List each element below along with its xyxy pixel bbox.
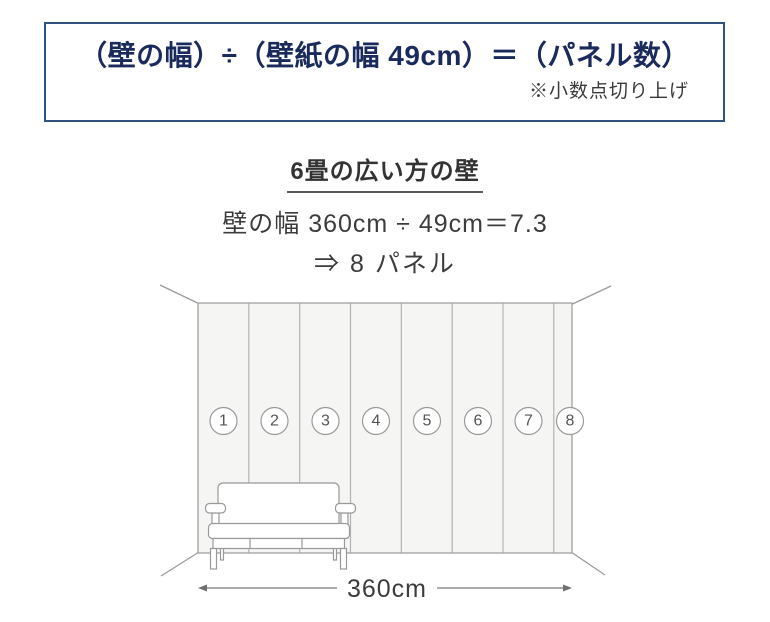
sofa-front-leg (341, 549, 347, 570)
dimension-line: 360cm (198, 575, 572, 603)
example-heading: 6畳の広い方の壁 (287, 158, 482, 193)
sofa-armrest (206, 504, 226, 514)
panel-number-badge: 3 (312, 408, 339, 435)
panel-number-badge: 6 (465, 408, 492, 435)
example-result: ⇒ 8 パネル (0, 248, 770, 280)
panel-number-badge: 2 (261, 408, 288, 435)
panel-count-formula: （壁の幅）÷（壁紙の幅 49cm）＝（パネル数） (46, 36, 723, 76)
panel-number: 2 (270, 413, 279, 430)
ceiling-corner-line-left (160, 285, 198, 303)
wall-width-label: 360cm (347, 575, 427, 603)
panel-number: 7 (524, 413, 533, 430)
panel-number-badge: 4 (363, 408, 390, 435)
panel-number: 8 (566, 413, 575, 430)
arrow-right-icon (563, 585, 572, 592)
panel-number: 3 (321, 413, 330, 430)
floor-corner-line-left (161, 553, 198, 576)
example-heading-wrap: 6畳の広い方の壁 (0, 158, 770, 193)
example-calculation: 壁の幅 360cm ÷ 49cm＝7.3 (0, 208, 770, 240)
wall-diagram: 1 2 3 4 5 6 7 (0, 280, 770, 622)
panel-number-badge: 7 (515, 408, 542, 435)
arrow-left-icon (198, 585, 207, 592)
formula-box: （壁の幅）÷（壁紙の幅 49cm）＝（パネル数） ※小数点切り上げ (44, 22, 725, 122)
sofa-armrest (336, 504, 356, 514)
ceiling-corner-line-right (573, 286, 612, 304)
sofa-apron (213, 539, 345, 549)
floor-corner-line-right (573, 553, 606, 575)
panel-number: 6 (474, 413, 483, 430)
round-up-note: ※小数点切り上げ (46, 80, 723, 104)
panel-number: 1 (219, 413, 228, 430)
panel-number-badge: 5 (414, 408, 441, 435)
sofa-illustration (206, 483, 356, 569)
panel-number: 5 (423, 413, 432, 430)
panel-number: 4 (372, 413, 381, 430)
panel-number-badge: 1 (210, 408, 237, 435)
sofa-front-leg (211, 549, 217, 570)
page: （壁の幅）÷（壁紙の幅 49cm）＝（パネル数） ※小数点切り上げ 6畳の広い方… (0, 0, 770, 622)
panel-number-badge: 8 (557, 408, 584, 435)
sofa-seat-cushion (209, 524, 350, 539)
